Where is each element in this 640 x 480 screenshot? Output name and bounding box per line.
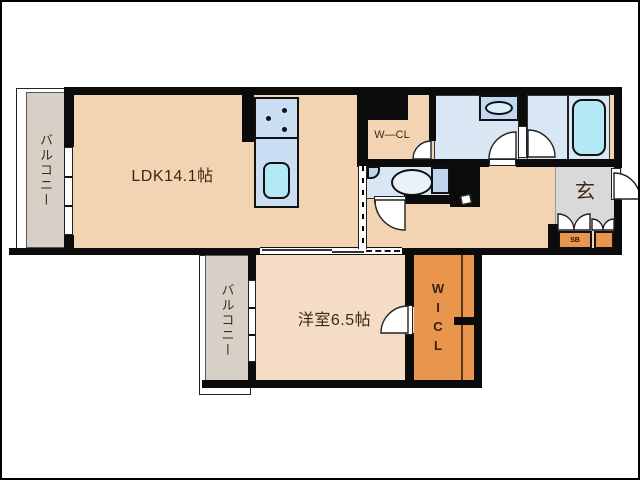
sliding-door-ldk-bedroom: [260, 247, 402, 255]
wall-entrance-stub: [548, 224, 558, 255]
kitchen-sink: [263, 162, 290, 199]
wall-bottom-left: [9, 248, 260, 255]
toilet-tank: [431, 167, 450, 194]
entrance-area: 玄: [555, 165, 614, 230]
washroom-door-leaf: [489, 159, 516, 166]
shoe-box-label: SB: [560, 233, 590, 247]
wall-wcl-right: [429, 95, 436, 141]
stove-burner-dot: [282, 108, 287, 113]
wall-kitchen-stub: [242, 90, 254, 142]
balcony-bottom-label: バルコニー: [206, 256, 248, 385]
open-partition-ldk-hall: [358, 166, 367, 249]
wall-toilet-bottom: [404, 195, 452, 204]
wall-bedroom-right-upper: [405, 255, 414, 307]
washbasin-counter: [479, 95, 519, 121]
counter-divider: [256, 137, 297, 139]
tub-platform-line: [567, 95, 569, 159]
wall-mid-band-right: [516, 159, 614, 167]
bedroom-door-leaf: [405, 305, 413, 335]
bedroom-label: 洋室6.5帖: [277, 305, 392, 330]
balcony-left-label: バルコニー: [27, 93, 64, 247]
wall-right-lower: [614, 200, 622, 255]
washbasin-bowl: [485, 101, 513, 115]
balcony-left: バルコニー: [26, 92, 65, 248]
bathroom-door-leaf: [518, 126, 527, 158]
wall-left-upper: [64, 90, 74, 147]
kitchen-counter: [254, 97, 299, 208]
balcony-bottom: バルコニー: [205, 255, 249, 386]
wall-bedroom-right-lower: [405, 333, 414, 383]
wall-wcl-top-mass: [368, 95, 408, 120]
entrance-door-leaf: [611, 168, 621, 200]
stove-burner-dot: [266, 116, 271, 121]
entrance-label: 玄: [556, 165, 614, 213]
window-ldk-balcony: [64, 147, 73, 235]
wall-right-upper: [614, 87, 622, 168]
wall-bedroom-left-upper: [248, 255, 256, 280]
wall-bottom-right: [402, 248, 622, 255]
floor-plan: バルコニー バルコニー 玄 WICL SB: [0, 0, 640, 480]
toilet-bowl: [391, 169, 433, 196]
stove-burner-dot: [282, 127, 287, 132]
wcl-label: W—CL: [365, 127, 419, 142]
wall-left-lower: [64, 235, 74, 255]
shoe-box-2: [594, 231, 614, 249]
shoe-box: SB: [558, 231, 592, 249]
window-bedroom-balcony: [248, 280, 256, 362]
ldk-label: LDK14.1帖: [110, 161, 235, 186]
bathtub: [572, 99, 606, 156]
wall-bottom-lower-section: [202, 380, 480, 388]
toilet-door-leaf: [374, 196, 406, 203]
wall-wicl-shelf-stub: [454, 317, 480, 325]
wall-top: [64, 87, 622, 95]
wall-washroom-bathroom: [519, 95, 527, 129]
wall-mid-band-left: [357, 159, 489, 167]
